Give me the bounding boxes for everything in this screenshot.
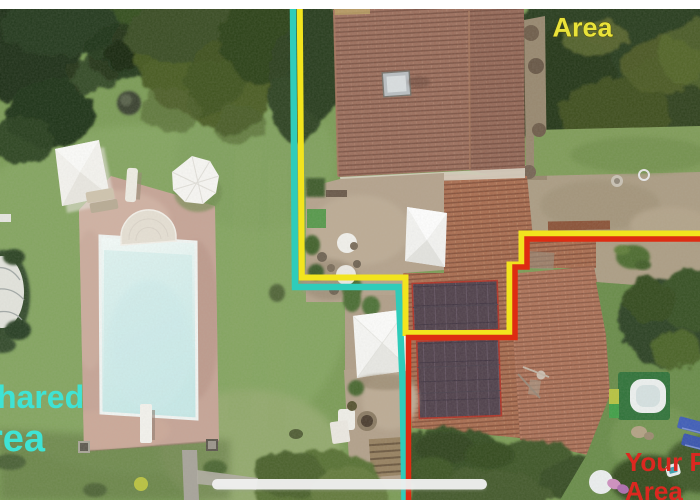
svg-text:Area: Area <box>553 13 614 43</box>
svg-text:Area: Area <box>625 476 683 500</box>
svg-text:hared: hared <box>0 379 84 415</box>
svg-text:rea: rea <box>0 418 46 460</box>
svg-text:Your P: Your P <box>625 447 700 477</box>
